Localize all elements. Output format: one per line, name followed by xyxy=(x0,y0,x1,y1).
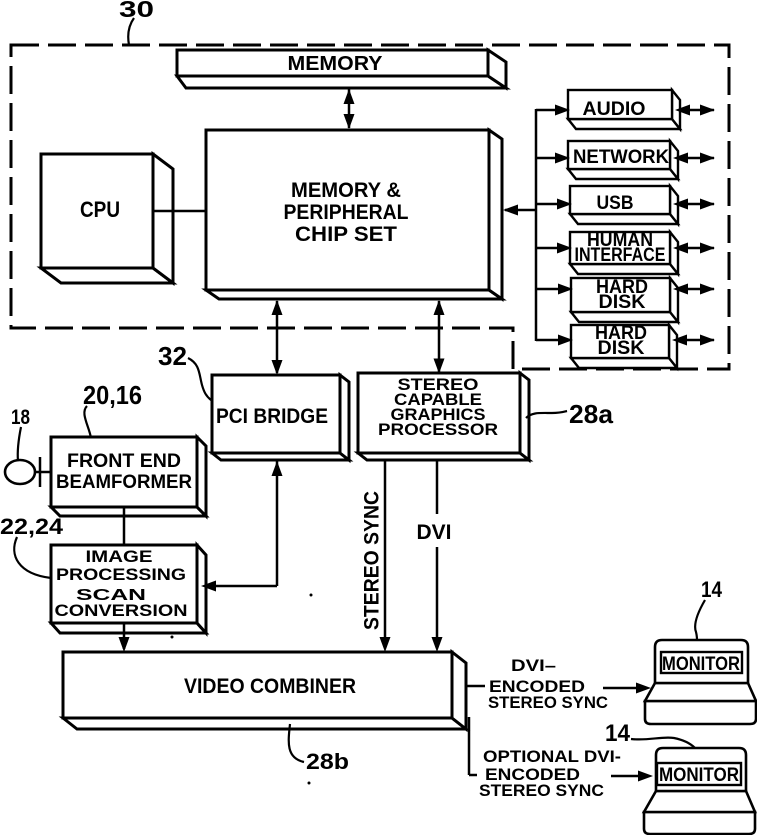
svg-text:14: 14 xyxy=(605,720,631,747)
svg-text:STEREO SYNC: STEREO SYNC xyxy=(488,693,608,712)
svg-text:PROCESSING: PROCESSING xyxy=(56,565,186,584)
svg-text:MEMORY &: MEMORY & xyxy=(291,179,401,202)
svg-text:PROCESSOR: PROCESSOR xyxy=(378,421,498,439)
svg-text:28a: 28a xyxy=(569,399,614,429)
svg-text:DVI: DVI xyxy=(417,521,452,544)
svg-text:AUDIO: AUDIO xyxy=(583,99,646,120)
svg-text:PERIPHERAL: PERIPHERAL xyxy=(284,201,409,224)
svg-text:CHIP SET: CHIP SET xyxy=(295,223,397,246)
svg-text:28b: 28b xyxy=(306,749,349,774)
svg-text:MONITOR: MONITOR xyxy=(662,654,740,675)
svg-text:22,24: 22,24 xyxy=(0,514,64,539)
svg-text:30: 30 xyxy=(119,0,154,22)
svg-text:CONVERSION: CONVERSION xyxy=(55,601,188,620)
svg-text:OPTIONAL DVI-: OPTIONAL DVI- xyxy=(483,747,621,766)
svg-text:STEREO SYNC: STEREO SYNC xyxy=(479,781,604,800)
svg-text:INTERFACE: INTERFACE xyxy=(575,245,666,266)
svg-text:VIDEO COMBINER: VIDEO COMBINER xyxy=(184,675,356,698)
svg-text:CPU: CPU xyxy=(80,197,120,222)
svg-text:DVI–: DVI– xyxy=(511,656,556,675)
svg-text:STEREO SYNC: STEREO SYNC xyxy=(361,491,384,630)
svg-text:PCI BRIDGE: PCI BRIDGE xyxy=(216,405,328,428)
svg-text:DISK: DISK xyxy=(598,338,645,359)
svg-text:14: 14 xyxy=(701,577,723,602)
svg-text:DISK: DISK xyxy=(599,292,646,313)
svg-text:20,16: 20,16 xyxy=(83,380,142,410)
svg-text:BEAMFORMER: BEAMFORMER xyxy=(56,472,192,493)
svg-text:IMAGE: IMAGE xyxy=(86,547,153,566)
svg-text:USB: USB xyxy=(597,193,634,214)
svg-text:NETWORK: NETWORK xyxy=(573,147,669,168)
svg-text:MEMORY: MEMORY xyxy=(288,53,384,75)
svg-text:32: 32 xyxy=(158,341,187,371)
svg-text:18: 18 xyxy=(11,406,30,429)
svg-text:MONITOR: MONITOR xyxy=(659,765,739,786)
svg-text:FRONT END: FRONT END xyxy=(67,451,181,472)
